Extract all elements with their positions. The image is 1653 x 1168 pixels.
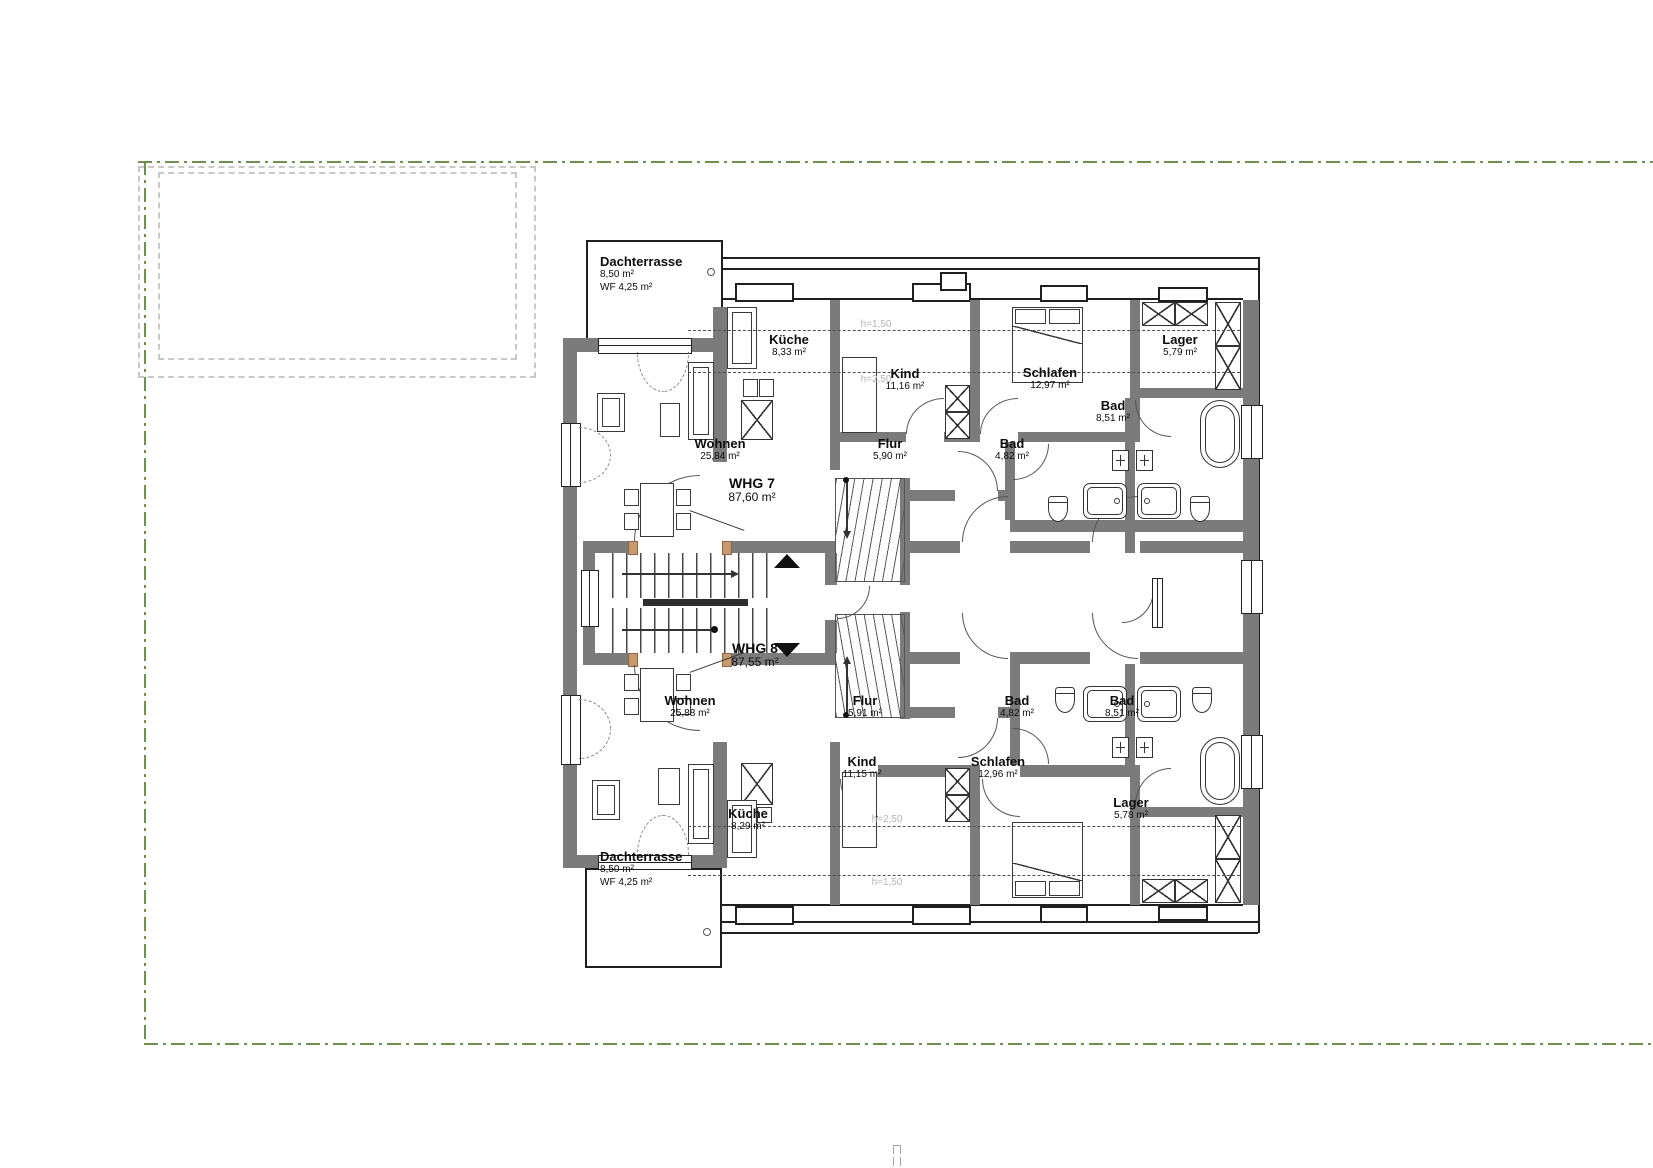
chimney (940, 272, 967, 291)
armchair-cushion (602, 398, 620, 427)
room-label-schlafen-whg7: Schlafen 12,97 m² (1023, 366, 1077, 393)
dormer-notch (1158, 287, 1208, 302)
window-frame (1251, 561, 1252, 613)
room-label-wohnen-whg8: Wohnen 25,88 m² (664, 694, 715, 721)
height-line-250-whg7 (688, 372, 1240, 373)
door-arc-flur-whg8 (958, 718, 998, 758)
window-frame (1251, 736, 1252, 788)
wardrobe (842, 772, 877, 848)
window-swing (579, 455, 611, 483)
room-label-terrace-whg8: Dachterrasse 8,50 m² WF 4,25 m² (600, 850, 682, 889)
roof-edge-top-outer (668, 257, 1260, 259)
toilet (1048, 496, 1068, 522)
armchair (592, 780, 620, 820)
room-label-schlafen-whg8: Schlafen 12,96 m² (971, 755, 1025, 782)
room-label-bad2-whg7: Bad 8,51 m² (1096, 399, 1130, 426)
chair (624, 513, 639, 530)
site-boundary-top (138, 161, 1653, 163)
wall (1020, 765, 1140, 777)
wall (563, 338, 577, 868)
room-label-kueche-whg8: Küche 8,29 m² (728, 807, 768, 834)
bed-cover-line (1013, 326, 1082, 344)
room-label-terrace-whg7: Dachterrasse 8,50 m² WF 4,25 m² (600, 255, 682, 294)
bed-pillow (1049, 881, 1080, 896)
stair-walk-arrow-icon (843, 656, 851, 664)
height-line-150-whg8 (688, 875, 1240, 876)
height-label: h=1,50 (861, 319, 892, 330)
window-frame (570, 696, 571, 764)
wall (1010, 541, 1090, 553)
armchair-cushion (597, 785, 615, 815)
toilet (1192, 687, 1212, 713)
stair-walk-line (846, 480, 848, 532)
corridor-end-door-leaf (1152, 578, 1163, 628)
bed-pillow (1049, 309, 1080, 324)
dormer-notch (735, 906, 794, 925)
door-frame-post (628, 541, 638, 555)
terrace-door-swing (663, 352, 689, 392)
dining-table (640, 483, 674, 537)
closet (1142, 879, 1175, 903)
armchair (597, 393, 625, 432)
downspout-icon (707, 268, 715, 276)
sofa-cushion (693, 367, 709, 435)
apartment-label-whg7: WHG 7 87,60 m² (728, 476, 775, 504)
wall (970, 300, 980, 442)
chair (676, 674, 691, 691)
room-label-flur-whg7: Flur 5,90 m² (873, 437, 907, 464)
floor-plan-canvas: h=1,50 h=2,50 h=2,50 h=1,50 Dachterrasse… (0, 0, 1653, 1168)
chair (676, 513, 691, 530)
roof-edge-top-inner (668, 268, 1260, 270)
toilet-tank (1191, 502, 1209, 503)
toilet-tank (1049, 502, 1067, 503)
stairwell-window (581, 570, 599, 627)
room-label-flur-whg8: Flur 5,91 m² (848, 694, 882, 721)
chair (624, 489, 639, 506)
window (561, 423, 581, 487)
site-boundary-bottom (144, 1043, 1653, 1045)
kitchen-cabinet (759, 379, 774, 397)
shaft (741, 763, 773, 805)
closet (1215, 302, 1241, 346)
dormer-notch (735, 283, 794, 302)
kitchen-counter (727, 307, 757, 369)
window (1241, 560, 1263, 614)
bed-pillow (1015, 881, 1046, 896)
toilet (1190, 496, 1210, 522)
stair-walk-start-dot (843, 477, 849, 483)
wall (830, 300, 840, 470)
wall (905, 541, 960, 553)
footprint-outline-inner (158, 172, 517, 360)
plot-mark (893, 1157, 901, 1166)
door-arc-bad2-whg7 (1135, 400, 1171, 437)
sink (1137, 686, 1181, 722)
roof-edge-bottom-outer (710, 932, 1258, 934)
stair-handrail (643, 599, 748, 606)
height-line-250-whg8 (688, 826, 1240, 827)
door-frame-post (722, 541, 732, 555)
bed-cover-line (1013, 863, 1082, 881)
side-table (660, 403, 680, 437)
stair-walk-line (622, 629, 714, 631)
chair (624, 698, 639, 715)
closet (1215, 859, 1241, 903)
wardrobe (842, 357, 877, 433)
corridor-door-arc (962, 613, 1008, 659)
window (1241, 735, 1263, 789)
window-swing (579, 699, 611, 729)
kitchen-cabinet (743, 379, 758, 397)
window-frame (599, 345, 691, 346)
toilet (1055, 687, 1075, 713)
closet (1142, 302, 1175, 326)
closet (945, 385, 970, 412)
dormer-notch (912, 906, 971, 925)
side-table (658, 768, 680, 805)
wall (728, 541, 835, 553)
window (1241, 405, 1263, 459)
wall (1140, 652, 1243, 664)
closet (945, 768, 970, 795)
downspout-icon (703, 928, 711, 936)
bathtub (1200, 737, 1240, 805)
wall (1018, 432, 1140, 442)
corridor-door-arc (962, 496, 1008, 542)
mirror-cabinet (1136, 737, 1153, 758)
door-arc-flur-whg7 (958, 451, 998, 491)
door-arc-kind-whg7 (906, 398, 944, 434)
closet (1175, 879, 1208, 903)
stair-walk-arrow-icon (731, 570, 739, 578)
window-swing (579, 729, 611, 759)
wall (905, 707, 955, 718)
window-frame (570, 424, 571, 486)
sink (1137, 483, 1181, 519)
sofa (688, 764, 714, 844)
mirror-cabinet (1136, 450, 1153, 471)
closet (1175, 302, 1208, 326)
wall (713, 742, 727, 868)
chair (624, 674, 639, 691)
wall (830, 742, 840, 905)
corridor-end-door-arc (1122, 590, 1154, 623)
door-arc-schlafen-whg7 (980, 398, 1018, 434)
stair-walk-start-dot (711, 626, 718, 633)
closet (1215, 815, 1241, 859)
terrace-door-swing (637, 352, 663, 392)
wall (1010, 652, 1090, 664)
wall (905, 652, 960, 664)
mirror-cabinet (1112, 450, 1129, 471)
room-label-wohnen-whg7: Wohnen 25,84 m² (694, 437, 745, 464)
stair-walk-line (622, 573, 732, 575)
bed-pillow (1015, 309, 1046, 324)
bathtub-basin (1205, 742, 1235, 800)
height-line-150-whg7 (688, 330, 1240, 331)
dormer-notch (1040, 906, 1088, 923)
sofa (688, 362, 714, 440)
kitchen-sink (732, 312, 752, 364)
closet (1215, 346, 1241, 390)
sink (1083, 483, 1127, 519)
sofa-cushion (693, 769, 709, 839)
height-label: h=1,50 (872, 877, 903, 888)
height-label: h=2,50 (872, 814, 903, 825)
dormer-notch (1158, 906, 1208, 921)
wall (905, 490, 955, 501)
chair (676, 489, 691, 506)
door-arc-schlafen-whg8 (982, 779, 1020, 817)
closet (945, 412, 970, 439)
plot-mark (893, 1145, 901, 1154)
closet (945, 795, 970, 822)
toilet-tank (1056, 693, 1074, 694)
room-label-bad-whg7: Bad 4,82 m² (995, 437, 1029, 464)
dormer-notch (1040, 285, 1088, 302)
room-label-lager-whg7: Lager 5,79 m² (1162, 333, 1197, 360)
toilet-tank (1193, 693, 1211, 694)
shaft (741, 400, 773, 440)
bathtub-basin (1205, 405, 1235, 463)
mirror-cabinet (1112, 737, 1129, 758)
room-label-kind-whg8: Kind 11,15 m² (843, 755, 882, 782)
room-label-lager-whg8: Lager 5,78 m² (1113, 796, 1148, 823)
stairs-up-arrow-icon (774, 554, 800, 568)
window-frame (589, 571, 590, 626)
room-label-bad2-whg8: Bad 8,51 m² (1105, 694, 1139, 721)
stair-walk-arrow-icon (843, 531, 851, 539)
room-label-kind-whg7: Kind 11,16 m² (886, 367, 925, 394)
window-frame (1251, 406, 1252, 458)
door-leaf-frame (1157, 579, 1158, 627)
wall (970, 765, 980, 905)
room-label-bad-whg8: Bad 4,82 m² (1000, 694, 1034, 721)
bathtub (1200, 400, 1240, 468)
wall (1140, 541, 1243, 553)
stair-flight-upper (612, 553, 770, 598)
room-label-kueche-whg7: Küche 8,33 m² (769, 333, 809, 360)
window (561, 695, 581, 765)
